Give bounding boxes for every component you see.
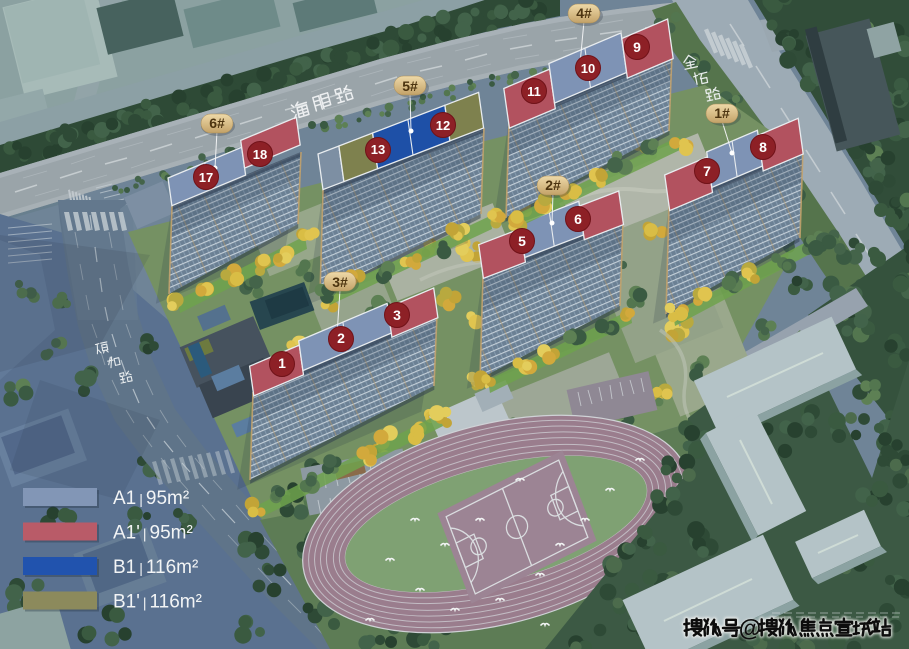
svg-text:6#: 6# <box>209 115 225 131</box>
svg-text:7: 7 <box>703 163 711 179</box>
svg-text:1#: 1# <box>714 105 730 121</box>
svg-text:5: 5 <box>518 233 526 249</box>
svg-text:5#: 5# <box>402 78 418 94</box>
svg-text:13: 13 <box>371 142 385 157</box>
svg-text:2#: 2# <box>545 177 561 193</box>
svg-text:A1'|95m²: A1'|95m² <box>113 523 193 544</box>
svg-text:A1|95m²: A1|95m² <box>113 488 189 509</box>
svg-text:3#: 3# <box>332 274 348 290</box>
svg-text:B1|116m²: B1|116m² <box>113 557 198 578</box>
svg-text:17: 17 <box>199 170 213 185</box>
svg-text:8: 8 <box>759 139 767 155</box>
svg-text:18: 18 <box>253 147 267 162</box>
svg-text:2: 2 <box>337 330 345 346</box>
svg-text:1: 1 <box>278 355 286 371</box>
svg-text:11: 11 <box>527 84 541 99</box>
svg-text:3: 3 <box>393 307 401 323</box>
svg-text:4#: 4# <box>576 5 592 21</box>
svg-text:12: 12 <box>436 118 450 133</box>
svg-text:@: @ <box>739 615 761 641</box>
svg-text:9: 9 <box>633 39 641 55</box>
svg-text:6: 6 <box>574 211 582 227</box>
svg-text:B1'|116m²: B1'|116m² <box>113 592 202 613</box>
svg-text:10: 10 <box>581 61 595 76</box>
